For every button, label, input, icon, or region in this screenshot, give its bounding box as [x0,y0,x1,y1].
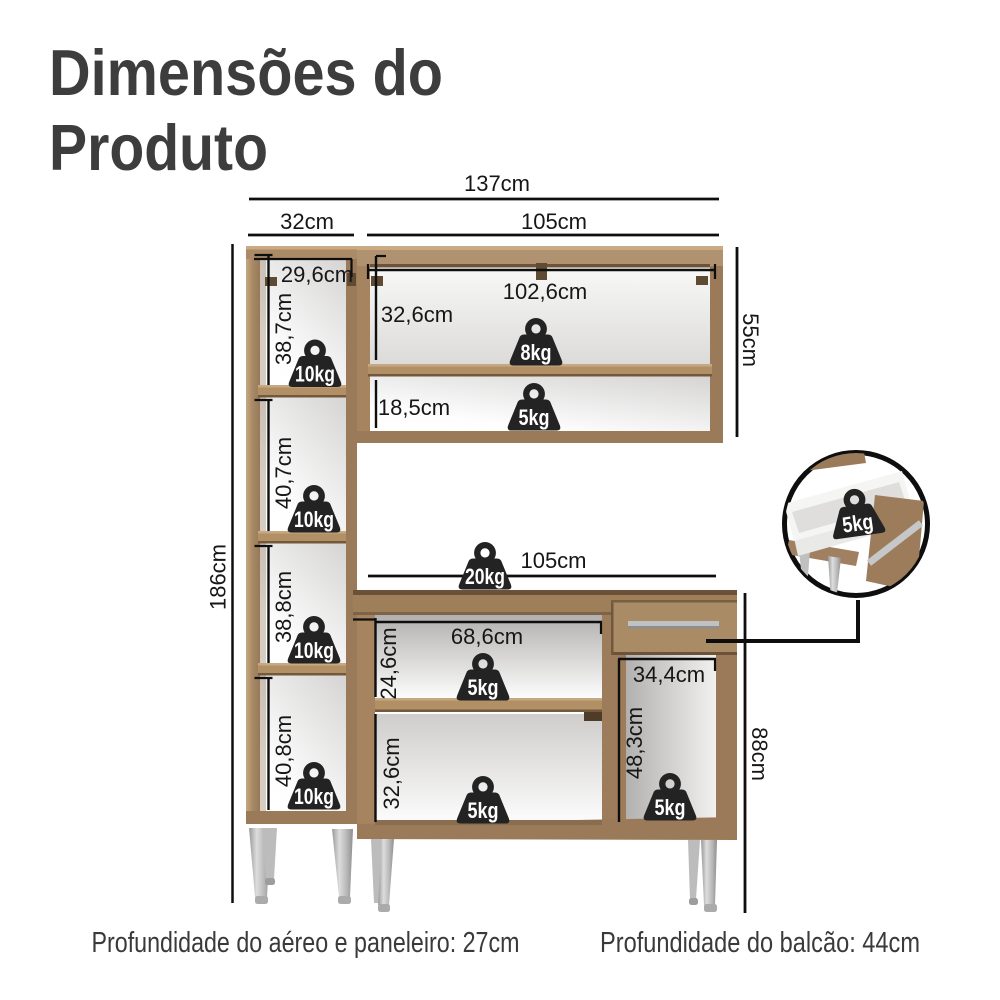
svg-text:40,7cm: 40,7cm [271,437,296,509]
svg-text:186cm: 186cm [206,544,231,610]
svg-text:32cm: 32cm [280,209,334,234]
svg-text:38,7cm: 38,7cm [271,293,296,365]
svg-text:102,6cm: 102,6cm [503,279,587,304]
svg-text:88cm: 88cm [747,727,772,781]
svg-text:5kg: 5kg [519,405,550,430]
svg-text:34,4cm: 34,4cm [633,662,705,687]
svg-text:29,6cm: 29,6cm [281,262,353,287]
svg-text:Profundidade do aéreo e panele: Profundidade do aéreo e paneleiro: 27cm [92,927,520,959]
svg-text:24,6cm: 24,6cm [376,627,401,699]
svg-text:10kg: 10kg [294,784,334,809]
svg-text:8kg: 8kg [521,340,552,365]
svg-text:105cm: 105cm [521,209,587,234]
svg-text:137cm: 137cm [464,171,530,196]
svg-text:105cm: 105cm [520,548,586,573]
svg-text:5kg: 5kg [468,798,499,823]
svg-text:20kg: 20kg [465,564,505,589]
svg-text:18,5cm: 18,5cm [378,395,450,420]
svg-text:68,6cm: 68,6cm [451,624,523,649]
svg-text:5kg: 5kg [655,795,686,820]
svg-text:Dimensões do: Dimensões do [49,36,443,109]
svg-text:10kg: 10kg [294,638,334,663]
svg-text:5kg: 5kg [468,675,499,700]
svg-text:Profundidade do balcão: 44cm: Profundidade do balcão: 44cm [600,927,920,959]
svg-text:Produto: Produto [49,111,268,184]
svg-text:5kg: 5kg [841,509,875,538]
svg-text:55cm: 55cm [738,313,763,367]
svg-text:38,8cm: 38,8cm [271,571,296,643]
svg-text:10kg: 10kg [295,362,335,387]
svg-text:48,3cm: 48,3cm [622,707,647,779]
svg-text:40,8cm: 40,8cm [271,715,296,787]
svg-text:10kg: 10kg [294,507,334,532]
svg-text:32,6cm: 32,6cm [379,737,404,809]
svg-text:32,6cm: 32,6cm [381,302,453,327]
